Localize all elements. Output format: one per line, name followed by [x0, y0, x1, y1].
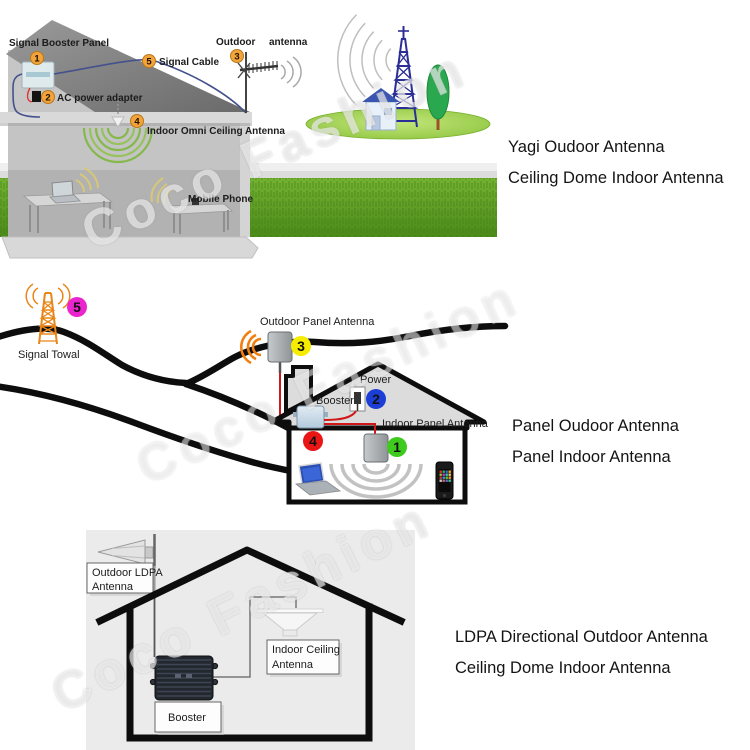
- label-outdoor: Outdoor: [216, 37, 256, 48]
- caption-line: Yagi Oudoor Antenna: [508, 132, 724, 163]
- base-station-scene: [306, 15, 490, 139]
- caption-line: Ceiling Dome Indoor Antenna: [508, 163, 724, 194]
- lawn-ellipse: [306, 109, 490, 139]
- caption-line: Panel Oudoor Antenna: [512, 411, 679, 442]
- svg-text:Booster: Booster: [168, 712, 206, 724]
- svg-text:2: 2: [45, 93, 50, 104]
- caption-line: Ceiling Dome Indoor Antenna: [455, 653, 708, 684]
- badge-5-tower: 5: [67, 297, 87, 317]
- badge-2: 2: [42, 91, 55, 104]
- booster-device-icon: [150, 656, 217, 700]
- label-indoor-omni: Indoor Omni Ceiling Antenna: [147, 126, 285, 137]
- label-ac-power-adapter: AC power adapter: [57, 93, 143, 104]
- outdoor-ldpa-label-box: Outdoor LDPA Antenna: [87, 563, 163, 596]
- svg-text:4: 4: [134, 117, 140, 128]
- yagi-antenna-icon: [238, 52, 278, 113]
- floor-platform: [2, 237, 258, 258]
- badge-1-indoor-antenna: 1: [387, 437, 407, 457]
- label-power: Power: [360, 374, 392, 386]
- badge-1: 1: [31, 52, 44, 65]
- yagi-signal-waves: [281, 57, 301, 87]
- label-antenna: antenna: [269, 37, 308, 48]
- svg-text:Outdoor LDPA: Outdoor LDPA: [92, 567, 163, 579]
- badge-4: 4: [131, 115, 144, 128]
- iphone-icon: [436, 462, 453, 499]
- badge-5: 5: [143, 55, 156, 68]
- svg-text:1: 1: [34, 54, 40, 65]
- badge-3-outdoor-antenna: 3: [291, 336, 311, 356]
- label-signal-cable: Signal Cable: [159, 57, 219, 68]
- svg-text:Indoor Ceiling: Indoor Ceiling: [272, 644, 340, 656]
- outdoor-panel-antenna-icon: [268, 332, 292, 373]
- signal-booster-infographic: 1 2 3 4 5 Signal Booster Panel AC power …: [0, 0, 750, 750]
- label-booster: Booster: [316, 395, 354, 407]
- ac-adapter: [32, 91, 41, 102]
- svg-text:Antenna: Antenna: [92, 581, 134, 593]
- label-signal-towal: Signal Towal: [18, 349, 80, 361]
- booster-label-box: Booster: [155, 702, 224, 735]
- booster-device-icon: [293, 406, 328, 428]
- svg-text:1: 1: [393, 439, 401, 455]
- label-outdoor-panel-antenna: Outdoor Panel Antenna: [260, 316, 375, 328]
- caption-line: LDPA Directional Outdoor Antenna: [455, 622, 708, 653]
- caption-line: Panel Indoor Antenna: [512, 442, 679, 473]
- caption-yagi-setup: Yagi Oudoor Antenna Ceiling Dome Indoor …: [508, 132, 724, 194]
- caption-ldpa-setup: LDPA Directional Outdoor Antenna Ceiling…: [455, 622, 708, 684]
- signal-booster-device: [22, 62, 54, 88]
- badge-4-booster: 4: [303, 431, 323, 451]
- svg-text:3: 3: [234, 52, 239, 63]
- svg-text:2: 2: [372, 391, 380, 407]
- svg-text:5: 5: [73, 299, 81, 315]
- svg-text:Antenna: Antenna: [272, 659, 314, 671]
- label-signal-booster-panel: Signal Booster Panel: [9, 38, 109, 49]
- svg-text:5: 5: [146, 57, 152, 68]
- svg-text:3: 3: [297, 338, 305, 354]
- badge-3: 3: [231, 50, 244, 63]
- label-indoor-panel-antenna: Indoor Panel Antenna: [382, 418, 489, 430]
- indoor-panel-antenna-icon: [364, 434, 388, 462]
- caption-panel-setup: Panel Oudoor Antenna Panel Indoor Antenn…: [512, 411, 679, 473]
- middle-diagram-panel-setup: 5 3 2 4 1 Signal Towal Outdoor Panel Ant…: [0, 280, 750, 520]
- badge-2-power: 2: [366, 389, 386, 409]
- indoor-ceiling-label-box: Indoor Ceiling Antenna: [267, 640, 342, 677]
- svg-text:4: 4: [309, 433, 317, 449]
- label-mobile-phone: Mobile Phone: [188, 194, 253, 205]
- laptop-icon: [52, 181, 73, 197]
